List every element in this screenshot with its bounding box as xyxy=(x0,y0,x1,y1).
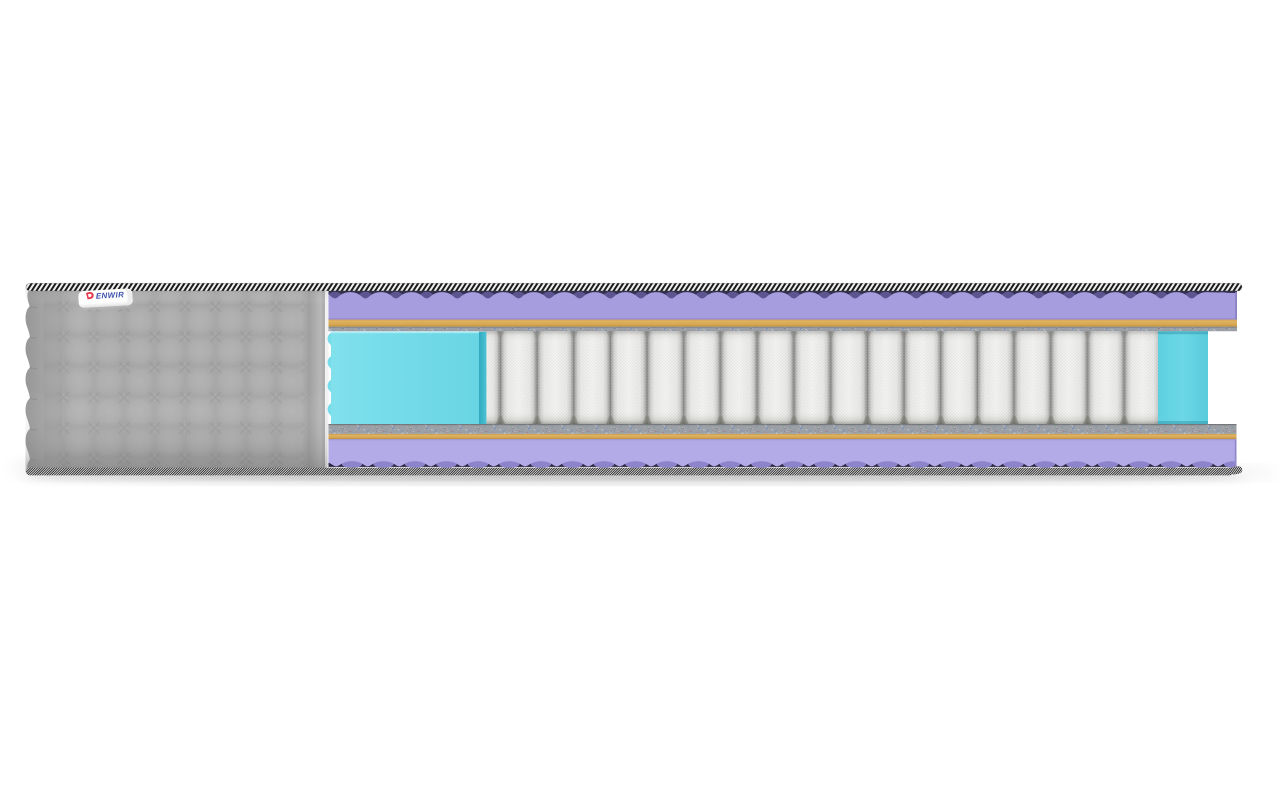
svg-text:ENWIR: ENWIR xyxy=(96,290,125,301)
